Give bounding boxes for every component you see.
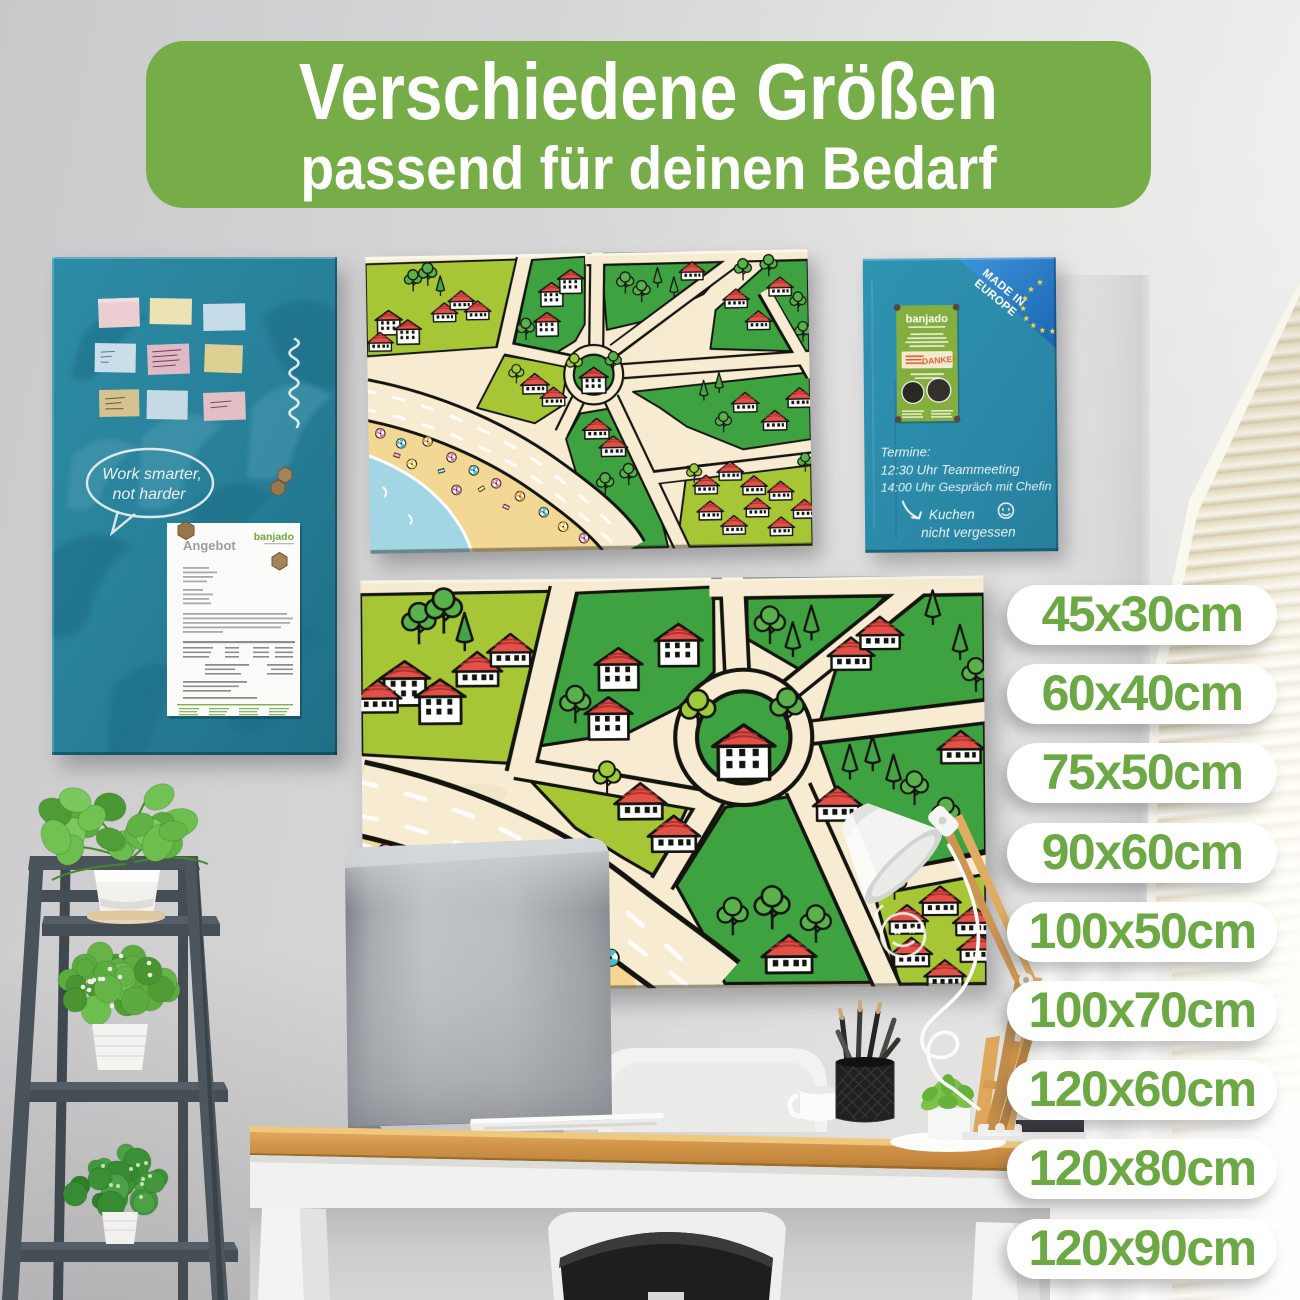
svg-text:14:00 Uhr Gespräch mit Chefin: 14:00 Uhr Gespräch mit Chefin bbox=[881, 479, 1052, 494]
svg-text:Kuchen: Kuchen bbox=[929, 507, 975, 522]
svg-text:Termine:: Termine: bbox=[880, 444, 931, 459]
svg-text:not harder: not harder bbox=[113, 486, 187, 503]
svg-text:banjado: banjado bbox=[254, 531, 294, 543]
svg-text:banjado: banjado bbox=[906, 313, 949, 325]
svg-text:12:30 Uhr Teammeeting: 12:30 Uhr Teammeeting bbox=[881, 461, 1021, 477]
svg-text:Angebot: Angebot bbox=[183, 538, 236, 553]
svg-text:Work smarter,: Work smarter, bbox=[102, 466, 202, 483]
svg-text:nicht vergessen: nicht vergessen bbox=[921, 525, 1016, 541]
